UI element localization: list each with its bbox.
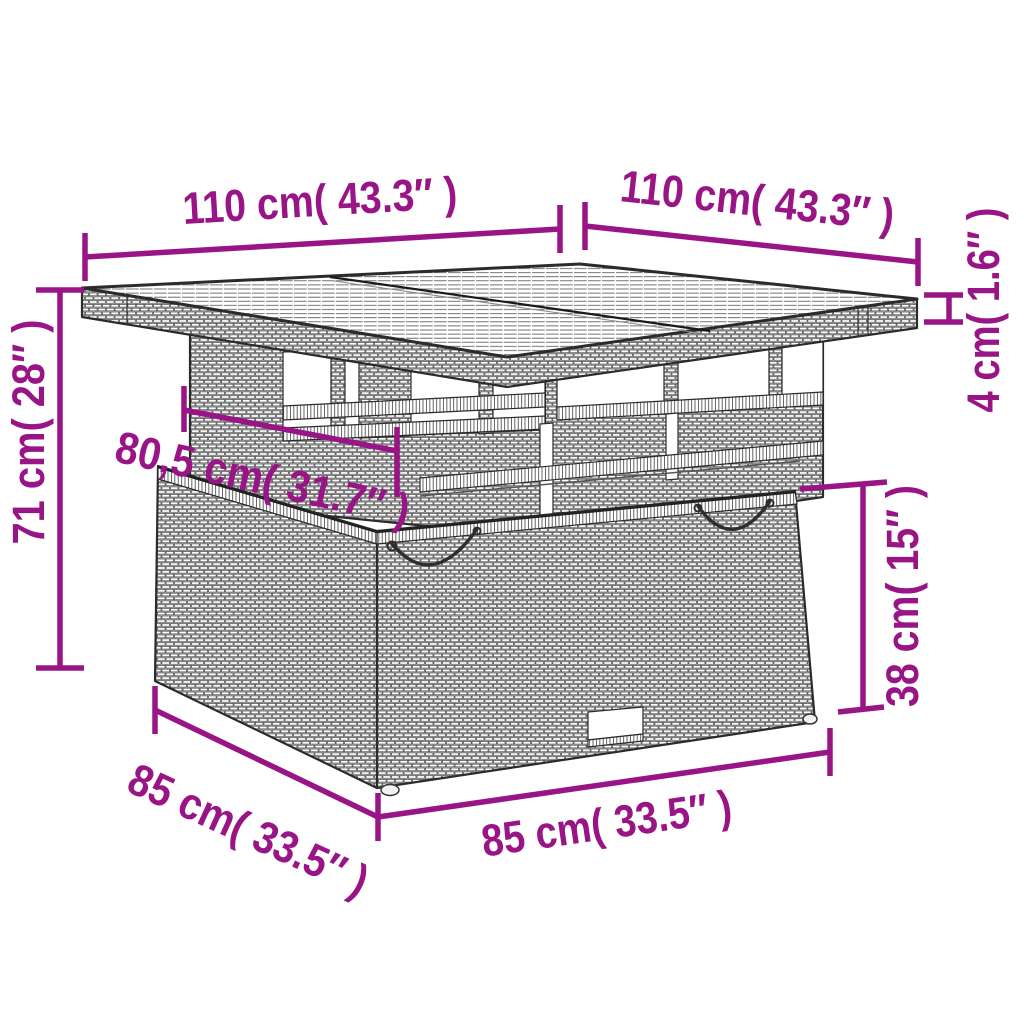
dimension-base-height: 38 cm( 15″ )	[800, 482, 928, 712]
lift-post	[666, 413, 678, 480]
box-foot	[381, 785, 399, 796]
dim-label-base-height: 38 cm( 15″ )	[877, 485, 928, 707]
box-foot	[803, 714, 817, 724]
dim-label-base-depth: 85 cm( 33.5″ )	[121, 753, 377, 906]
dim-label-tabletop-width: 110 cm( 43.3″ )	[181, 167, 459, 234]
dimension-tabletop-thickness: 4 cm( 1.6″ )	[924, 208, 1009, 413]
dim-label-tabletop-thickness: 4 cm( 1.6″ )	[958, 208, 1009, 413]
dimension-overall-height: 71 cm( 28″ )	[3, 290, 84, 668]
product-dimension-diagram: 110 cm( 43.3″ ) 110 cm( 43.3″ ) 4 cm( 1.…	[0, 0, 1024, 1024]
dimension-tabletop-depth: 110 cm( 43.3″ )	[585, 160, 918, 286]
diagram-drawing: 110 cm( 43.3″ ) 110 cm( 43.3″ ) 4 cm( 1.…	[0, 0, 1024, 1024]
dim-label-overall-height: 71 cm( 28″ )	[3, 320, 54, 545]
dim-label-tabletop-depth: 110 cm( 43.3″ )	[618, 160, 897, 240]
dim-label-base-width: 85 cm( 33.5″ )	[478, 780, 735, 866]
dimension-tabletop-width: 110 cm( 43.3″ )	[85, 167, 560, 281]
